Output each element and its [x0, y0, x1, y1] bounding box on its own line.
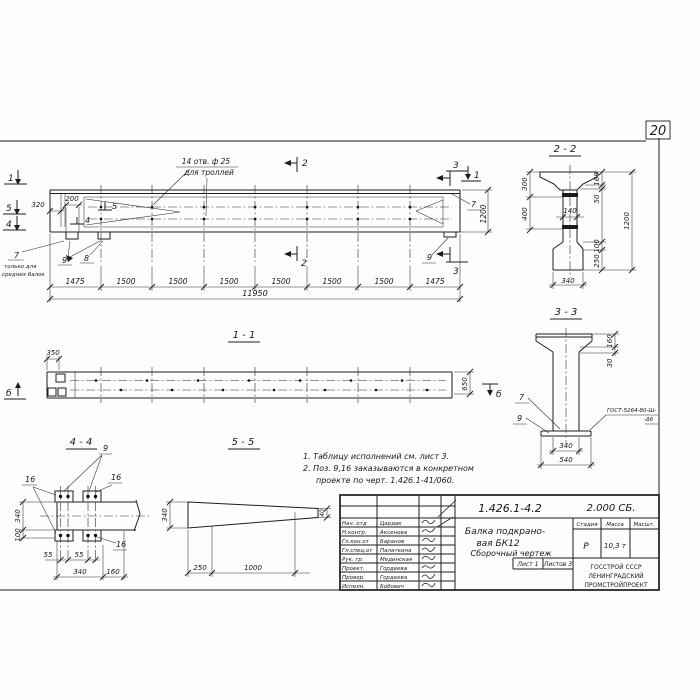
section-mark: 3 [453, 267, 459, 277]
pos-label: 16 [25, 475, 35, 484]
pos-leaders-right: 7 9 [422, 194, 481, 263]
section-marks-2: 2 2 [284, 157, 308, 269]
dim-label: 350 [46, 349, 60, 357]
name: Гордеева [380, 575, 408, 581]
section-mark: б [6, 389, 12, 399]
section-mark: 4 [6, 220, 12, 230]
dim-label: 1500 [168, 277, 187, 286]
note-text: только для [4, 264, 37, 270]
role: Провер. [342, 575, 365, 581]
weld-callout: ГОСТ-5264-80-Ш- -Δ6 [590, 408, 658, 430]
pos-label: 7 [471, 200, 477, 209]
dim-label: 1475 [425, 277, 444, 286]
col-header: Масшт. [633, 522, 654, 528]
pos-label: 7 [14, 251, 20, 260]
dim-label: 1500 [271, 277, 290, 286]
dim-label: 1500 [322, 277, 341, 286]
pos-label: 16 [111, 473, 121, 482]
name: Баранов [380, 539, 404, 545]
section-mark: б [496, 390, 502, 400]
section-marks-left: 1 5 4 [3, 170, 27, 231]
dim-label: 1200 [479, 204, 488, 223]
role: Рук. гр. [342, 557, 364, 563]
section-mark: 2 [301, 259, 307, 269]
dim-label: 1500 [116, 277, 135, 286]
col-header: Масса [606, 522, 624, 528]
dim-label: 250 [193, 564, 207, 572]
drawing-subtitle: Сборочный чертеж [471, 549, 553, 558]
notes: 1. Таблицу исполнений см. лист 3. 2. Поз… [303, 452, 474, 485]
section-3-3: 3 - 3 160 30 340 540 7 9 ГОСТ-5264-80-Ш-… [513, 307, 658, 469]
dim-label: 340 [161, 508, 169, 522]
trolley-holes [101, 207, 410, 219]
dim-label: 160 [606, 334, 614, 348]
elevation-view: 14 отв. ф 25 для троллей 320 200 5 4 1 5… [2, 157, 492, 302]
end-dims: 320 200 [31, 195, 82, 232]
dim-label: 140 [563, 207, 577, 215]
weld-note: -Δ6 [644, 417, 654, 423]
note-line: 2. Поз. 9,16 заказываются в конкретном [303, 464, 474, 473]
view-title: 1 - 1 [233, 330, 256, 341]
dim-label: 1500 [219, 277, 238, 286]
role: Гл.кон.от [342, 539, 370, 545]
blueprint-svg: 20 14 отв. ф 25 для троллей 320 200 5 4 [0, 0, 700, 700]
pos-label: 8 [84, 254, 89, 263]
role: Исполн. [342, 584, 365, 590]
pos-leaders-left: 7 только для средних балок 9 8 [2, 241, 103, 278]
dim-label: 100 [593, 239, 601, 253]
pos-label: 9 [427, 253, 432, 262]
section-mark: 1 [8, 174, 14, 184]
role: Нач. отд [342, 521, 367, 527]
note-line: 1. Таблицу исполнений см. лист 3. [303, 452, 449, 461]
dim-label: 1500 [374, 277, 393, 286]
name: Гордеева [380, 566, 408, 572]
dim-label: 1200 [623, 212, 631, 230]
flag-label: 4 [85, 216, 90, 225]
dim-label: 160 [106, 568, 120, 576]
name: Палаткина [380, 548, 412, 554]
sheet-count: Листов 3 [543, 561, 572, 568]
note-text: средних балок [2, 272, 46, 278]
svg-text:14 отв. ф 25: 14 отв. ф 25 [182, 157, 231, 166]
dim-label: 200 [65, 195, 79, 203]
view-title: 2 - 2 [554, 144, 577, 155]
pos-label: 9 [62, 256, 67, 265]
dim-label: 320 [31, 201, 45, 209]
org-name: ЛЕНИНГРАДСКИЙ [588, 573, 643, 580]
section-mark: 3 [453, 161, 459, 171]
dim-label: 55 [75, 551, 84, 559]
section-mark: 5 [6, 204, 12, 214]
bearing-plate [444, 232, 456, 237]
name: Аксенова [379, 530, 408, 536]
signatures [422, 500, 456, 587]
role: Гл.спец.от [342, 548, 373, 554]
section-1-1: 1 - 1 350 650 б б [4, 330, 502, 403]
role: Н.контр. [342, 530, 367, 536]
bearing-plate [98, 232, 110, 239]
col-header: Стадия [576, 522, 598, 528]
view-title: 4 - 4 [70, 437, 93, 448]
page-number: 20 [650, 124, 667, 139]
drawing-title: вая БК12 [476, 539, 519, 549]
sheet-number: Лист 1 [517, 561, 539, 568]
name: Цардак [380, 521, 402, 527]
section-mark: 2 [302, 159, 308, 169]
dim-label: 340 [559, 442, 573, 450]
section-mark: 1 [474, 171, 480, 181]
dim-label: 250 [593, 254, 601, 268]
flag-label: 5 [112, 202, 117, 211]
dim-label: 30 [606, 358, 614, 367]
dim-label: 540 [559, 456, 573, 464]
dim-label: 11950 [242, 289, 267, 298]
role: Проект. [342, 566, 365, 572]
sheet-frame: 20 [0, 121, 670, 590]
note-line: проекте по черт. 1.426.1-41/060. [316, 476, 454, 485]
view-title: 5 - 5 [232, 437, 255, 448]
dim-label: 400 [521, 207, 529, 221]
weld-note: ГОСТ-5264-80-Ш- [607, 408, 656, 414]
dim-label: 1475 [65, 277, 84, 286]
org-name: ПРОМСТРОЙПРОЕКТ [584, 582, 648, 589]
drawing-sheet: 20 14 отв. ф 25 для троллей 320 200 5 4 [0, 0, 700, 700]
dim-label: 55 [44, 551, 53, 559]
dim-label: 340 [561, 277, 575, 285]
view-title: 3 - 3 [555, 307, 578, 318]
org-name: ГОССТРОЙ СССР [590, 564, 642, 571]
bearing-plate [66, 232, 78, 239]
section-2-2: 2 - 2 300 400 140 160 50 1200 100 250 34… [521, 144, 636, 289]
drawing-title: Балка подкрано- [465, 527, 545, 537]
pos-label: 9 [517, 414, 522, 423]
name: Мединская [380, 557, 413, 563]
svg-text:для троллей: для троллей [183, 168, 234, 177]
dim-label: 650 [461, 377, 469, 391]
dim-label: 100 [14, 528, 22, 542]
pos-label: 7 [519, 393, 525, 402]
doc-series: 2.000 СБ. [587, 503, 636, 514]
doc-number: 1.426.1-4.2 [478, 502, 541, 515]
dim-label: 300 [521, 177, 529, 191]
stage-value: Р [583, 542, 589, 552]
section-4-4: 4 - 4 9 16 16 16 340 100 55 55 340 160 [14, 437, 150, 580]
pos-label: 9 [103, 444, 108, 453]
dim-label: 340 [73, 568, 87, 576]
dim-label: 50 [593, 194, 601, 203]
pos-label: 16 [116, 540, 126, 549]
dim-label: 340 [14, 509, 22, 523]
dim-label: 160 [593, 172, 601, 186]
dim-label: 1000 [244, 564, 262, 572]
mass-value: 10,3 т [604, 542, 627, 550]
dim-label: 40 [319, 509, 326, 517]
title-block: 1.426.1-4.2 2.000 СБ. Балка подкрано- ва… [340, 495, 659, 590]
trolley-holes-plan [96, 381, 427, 391]
name: Бобович [380, 584, 405, 590]
